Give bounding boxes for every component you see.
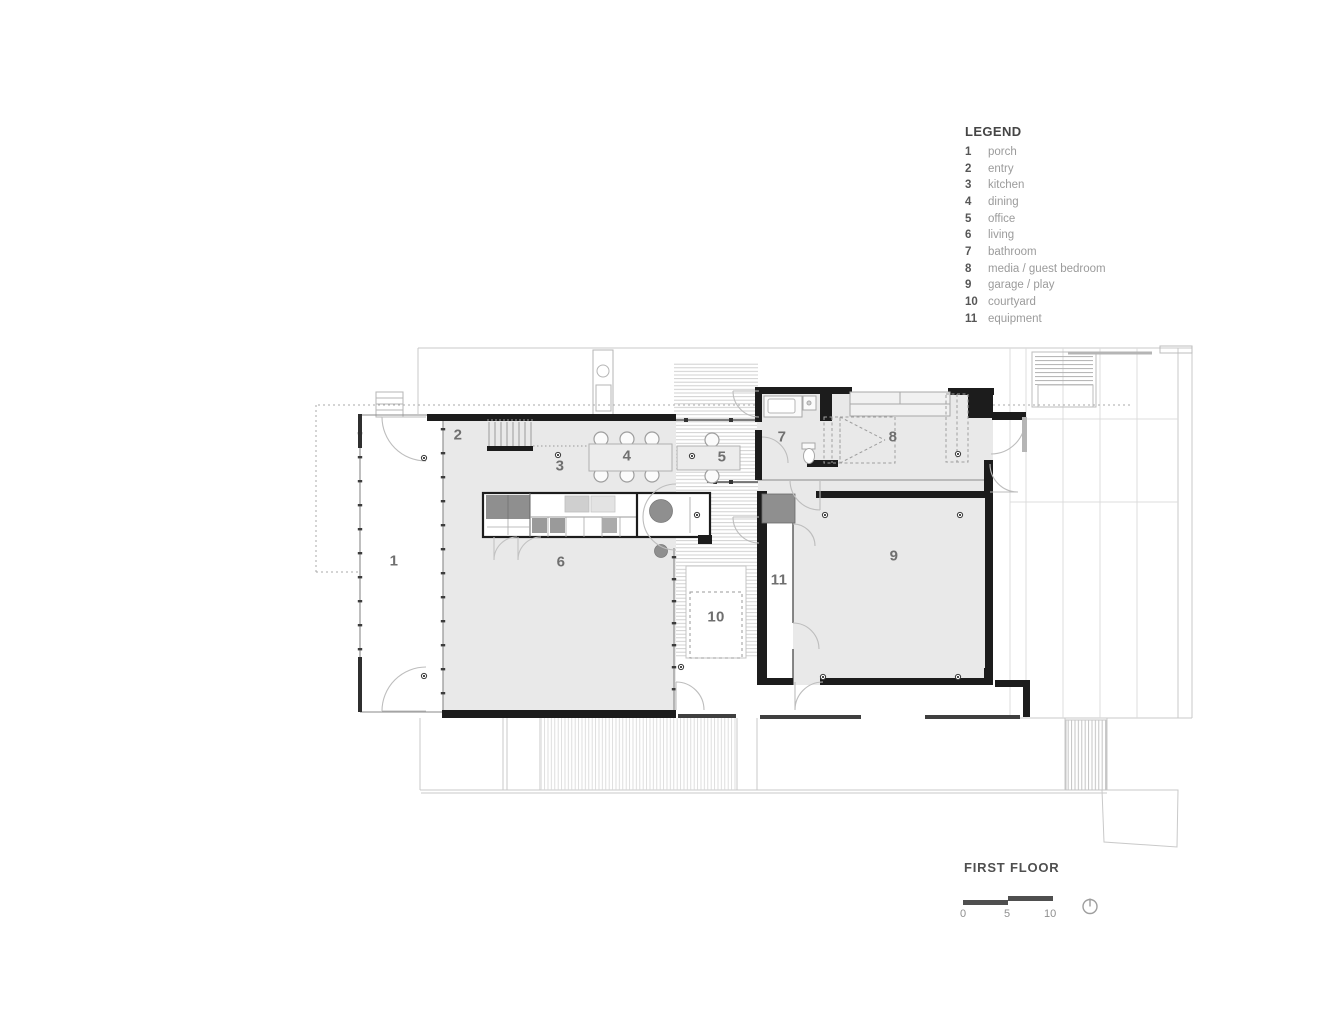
- legend-item-label: porch: [988, 144, 1017, 161]
- floor-plan-page: 1 2 3 4 5 6 7 8 9 10 11 LEGEND 1porch 2e…: [0, 0, 1320, 1020]
- room-label-office: 5: [718, 449, 727, 466]
- legend-item: 4dining: [965, 194, 1175, 211]
- office-desk: [677, 446, 740, 470]
- deck-boards: [541, 718, 737, 790]
- legend-item-label: living: [988, 227, 1014, 244]
- scale-tick: 5: [1004, 908, 1010, 920]
- room-label-equipment: 11: [771, 572, 787, 589]
- legend-item-number: 9: [965, 277, 988, 294]
- round-table: [650, 500, 673, 523]
- legend-item: 11equipment: [965, 311, 1175, 328]
- legend-item-label: bathroom: [988, 244, 1037, 261]
- equipment-unit: [762, 494, 795, 523]
- legend-item-number: 10: [965, 294, 988, 311]
- legend-item: 1porch: [965, 144, 1175, 161]
- room-label-garage-play: 9: [890, 548, 899, 565]
- legend-item-number: 3: [965, 177, 988, 194]
- open-door-leaf: [1022, 417, 1027, 452]
- north-arrow-icon: [1081, 897, 1099, 915]
- legend-item-number: 2: [965, 161, 988, 178]
- side-steps: [1066, 720, 1106, 790]
- patio-grid: [1010, 348, 1178, 718]
- legend-item: 7bathroom: [965, 244, 1175, 261]
- equipment-room-floor: [767, 498, 793, 685]
- garage-floor: [767, 498, 988, 685]
- legend-item: 10courtyard: [965, 294, 1175, 311]
- legend-item-number: 11: [965, 311, 988, 328]
- room-label-bathroom: 7: [778, 429, 787, 446]
- legend-item-label: equipment: [988, 311, 1042, 328]
- room-label-courtyard: 10: [707, 609, 724, 626]
- room-label-dining: 4: [623, 448, 632, 465]
- sofa: [850, 392, 950, 416]
- legend-item: 9garage / play: [965, 277, 1175, 294]
- legend-item-label: garage / play: [988, 277, 1055, 294]
- legend-item: 5office: [965, 211, 1175, 228]
- legend-item-label: entry: [988, 161, 1014, 178]
- legend-item-number: 8: [965, 261, 988, 278]
- legend-item-label: kitchen: [988, 177, 1024, 194]
- kitchen-island: [483, 493, 712, 544]
- legend-item: 8media / guest bedroom: [965, 261, 1175, 278]
- room-label-media-guest-bedroom: 8: [889, 429, 898, 446]
- drawing-title: FIRST FLOOR: [964, 860, 1059, 875]
- legend-item-label: courtyard: [988, 294, 1036, 311]
- legend-item-label: media / guest bedroom: [988, 261, 1106, 278]
- legend-item: 2entry: [965, 161, 1175, 178]
- room-label-porch: 1: [390, 553, 399, 570]
- legend-item-label: dining: [988, 194, 1019, 211]
- legend-header: LEGEND: [965, 124, 1175, 139]
- scale-tick: 10: [1044, 908, 1056, 920]
- room-label-kitchen: 3: [556, 458, 565, 475]
- room-label-entry: 2: [454, 427, 463, 444]
- legend-item-number: 7: [965, 244, 988, 261]
- scale-bar-segment: [963, 900, 1008, 905]
- site-steps-bench: [1032, 346, 1192, 407]
- legend-item: 3kitchen: [965, 177, 1175, 194]
- legend-item-number: 6: [965, 227, 988, 244]
- room-label-living: 6: [557, 554, 566, 571]
- legend-item: 6living: [965, 227, 1175, 244]
- legend-item-number: 1: [965, 144, 988, 161]
- legend-item-number: 4: [965, 194, 988, 211]
- legend-item-number: 5: [965, 211, 988, 228]
- legend: LEGEND 1porch 2entry 3kitchen 4dining 5o…: [965, 124, 1175, 327]
- legend-item-label: office: [988, 211, 1015, 228]
- scale-tick: 0: [960, 908, 966, 920]
- scale-bar-segment: [1008, 896, 1053, 901]
